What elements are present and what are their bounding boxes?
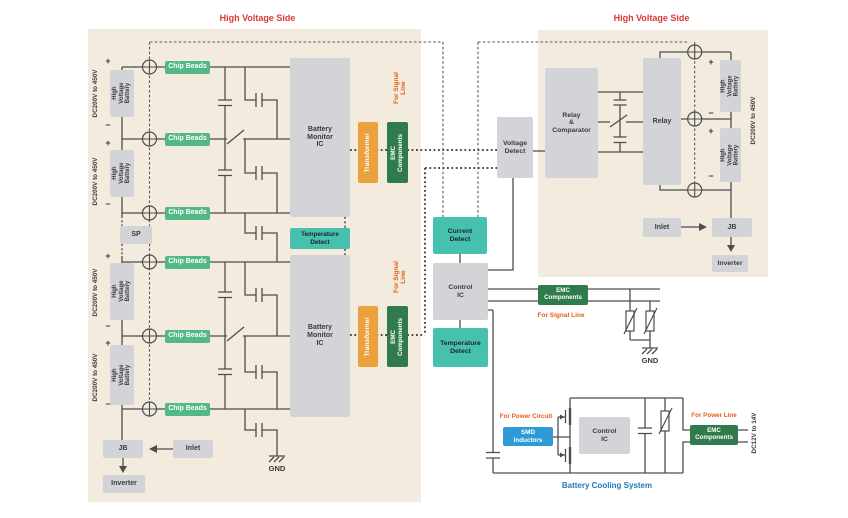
service-plug-box: SP: [120, 226, 152, 244]
for-power-circuit-label: For Power Circuit: [497, 413, 555, 422]
inlet-right: Inlet: [643, 218, 681, 237]
temperature-detect-main: Temperature Detect: [433, 328, 488, 367]
minus-sign: −: [102, 121, 114, 131]
chip-beads-3: Chip Beads: [165, 207, 210, 220]
inlet-left: Inlet: [173, 440, 213, 458]
battery-monitoring-diagram: High Voltage Side High Voltage Side High…: [0, 0, 848, 518]
chip-beads-4: Chip Beads: [165, 256, 210, 269]
control-ic-main: Control IC: [433, 263, 488, 320]
varistor-icon: [624, 308, 672, 434]
plus-sign: +: [102, 139, 114, 149]
relay-comparator: Relay & Comparator: [545, 68, 598, 178]
minus-sign: −: [102, 400, 114, 410]
minus-sign: −: [705, 172, 717, 182]
minus-sign: −: [102, 322, 114, 332]
chip-beads-2: Chip Beads: [165, 133, 210, 146]
high-voltage-battery-right-2: High Voltage Battery: [720, 128, 741, 182]
emc-components-2: EMC Components: [387, 306, 408, 367]
inverter-left: Inverter: [103, 475, 145, 493]
capacitor-symbol: [638, 398, 652, 473]
plus-sign: +: [102, 57, 114, 67]
battery-monitor-ic-2: Battery Monitor IC: [290, 255, 350, 417]
transformer-2: Transformer: [358, 306, 378, 367]
for-signal-line-label: For Signal Line: [396, 65, 406, 111]
relay: Relay: [643, 58, 681, 185]
battery-cooling-system-title: Battery Cooling System: [552, 480, 662, 492]
chip-beads-1: Chip Beads: [165, 61, 210, 74]
high-voltage-battery-3: High Voltage Battery: [110, 263, 134, 320]
minus-sign: −: [102, 200, 114, 210]
minus-sign: −: [705, 109, 717, 119]
for-signal-line-label: For Signal Line: [396, 254, 406, 300]
left-hv-panel: [88, 29, 421, 502]
dc-range-label: DC200V to 450V: [92, 57, 101, 130]
current-detect: Current Detect: [433, 217, 487, 254]
chip-beads-5: Chip Beads: [165, 330, 210, 343]
dc-range-label: DC200V to 450V: [92, 145, 101, 218]
varistor-icon: [630, 289, 650, 348]
high-voltage-battery-4: High Voltage Battery: [110, 345, 134, 405]
emc-components-1: EMC Components: [387, 122, 408, 183]
left-panel-title: High Voltage Side: [195, 12, 320, 25]
temperature-detect-left: Temperature Detect: [290, 228, 350, 249]
capacitor-symbol: [486, 453, 500, 474]
dc-range-label: DC200V to 450V: [92, 256, 101, 329]
smd-inductors: SMD Inductors: [503, 427, 553, 446]
plus-sign: +: [705, 127, 717, 137]
right-panel-title: High Voltage Side: [589, 12, 714, 25]
emc-components-signal: EMC Components: [538, 285, 588, 305]
dc-range-label: DC200V to 450V: [92, 341, 101, 414]
jb-right: JB: [712, 218, 752, 237]
transformer-1: Transformer: [358, 122, 378, 183]
high-voltage-battery-1: High Voltage Battery: [110, 70, 134, 117]
plus-sign: +: [102, 252, 114, 262]
plus-sign: +: [705, 58, 717, 68]
high-voltage-battery-right-1: High Voltage Battery: [720, 60, 741, 112]
dc-range-label-right: DC200V to 450V: [750, 84, 759, 157]
high-voltage-battery-2: High Voltage Battery: [110, 150, 134, 197]
for-signal-line-label: For Signal Line: [533, 311, 589, 321]
plus-sign: +: [102, 339, 114, 349]
jb-left: JB: [103, 440, 143, 458]
inverter-right: Inverter: [712, 255, 748, 272]
for-power-line-label: For Power Line: [688, 412, 740, 421]
battery-monitor-ic-1: Battery Monitor IC: [290, 58, 350, 217]
emc-components-power: EMC Components: [690, 425, 738, 445]
chip-beads-6: Chip Beads: [165, 403, 210, 416]
gnd-label-middle: GND: [635, 356, 665, 366]
dc12v-range-label: DC12V to 14V: [750, 394, 760, 472]
control-ic-cooling: Control IC: [579, 417, 630, 454]
mosfet-icon: [558, 410, 566, 462]
voltage-detect: Voltage Detect: [497, 117, 533, 178]
gnd-label-left: GND: [262, 464, 292, 474]
